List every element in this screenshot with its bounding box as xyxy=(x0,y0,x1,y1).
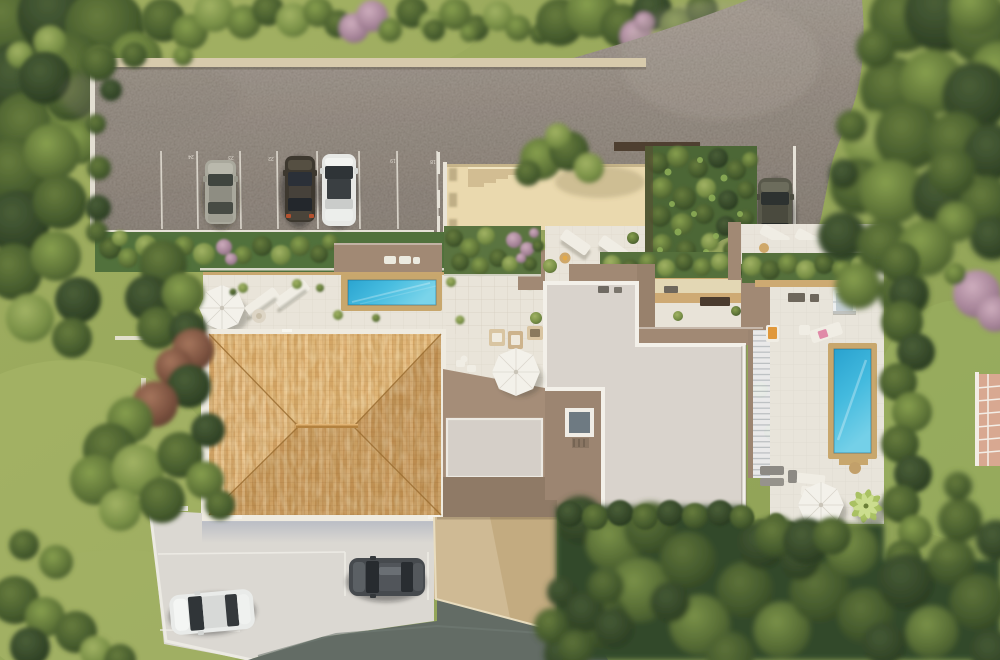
svg-text:18: 18 xyxy=(430,158,436,164)
svg-text:24: 24 xyxy=(188,153,194,159)
svg-text:19: 19 xyxy=(390,157,396,163)
svg-text:23: 23 xyxy=(228,154,234,160)
svg-text:22: 22 xyxy=(268,155,274,161)
